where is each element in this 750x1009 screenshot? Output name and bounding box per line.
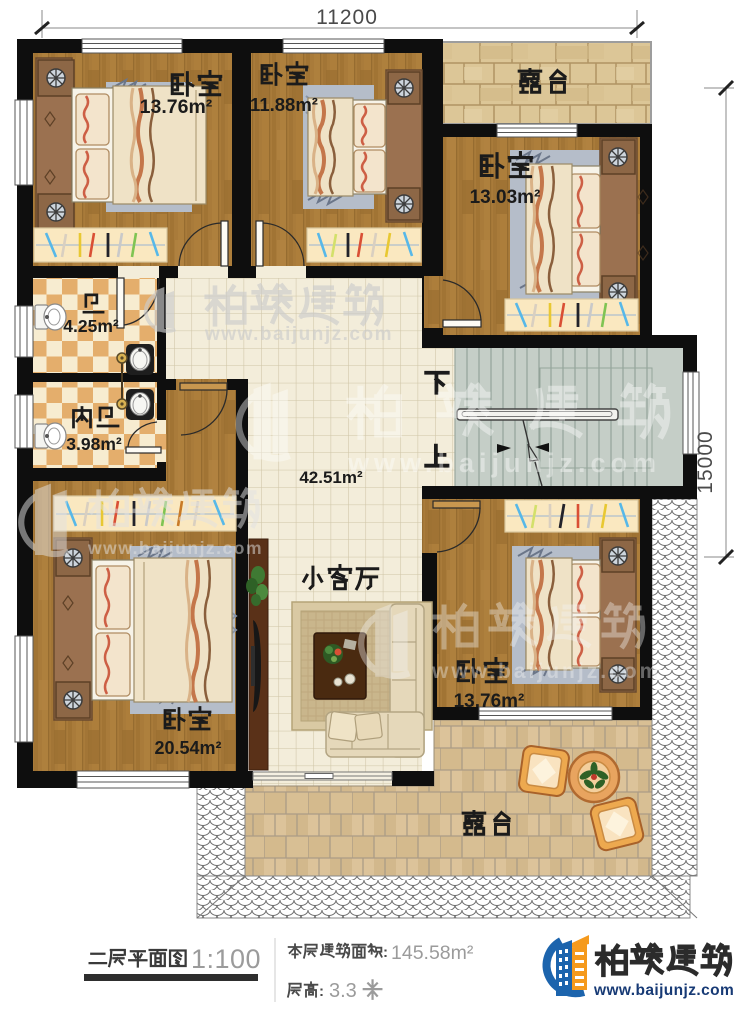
svg-text:www.baijunjz.com: www.baijunjz.com [593, 982, 734, 999]
svg-text:www.baijunjz.com: www.baijunjz.com [87, 538, 263, 558]
svg-text:4.25m²: 4.25m² [63, 316, 119, 336]
svg-text:13.76m²: 13.76m² [454, 691, 525, 712]
svg-text:www.baijunjz.com: www.baijunjz.com [204, 324, 393, 345]
svg-text:3.3: 3.3 [329, 980, 357, 1002]
svg-text:13.76m²: 13.76m² [140, 96, 213, 118]
svg-text:www.baijunjz.com: www.baijunjz.com [431, 660, 661, 683]
svg-text::: : [383, 944, 388, 961]
svg-text:20.54m²: 20.54m² [154, 738, 221, 758]
svg-text::: : [319, 983, 324, 1000]
svg-text:15000: 15000 [694, 430, 717, 493]
svg-text:3.98m²: 3.98m² [66, 434, 122, 454]
svg-text:www.baijunjz.com: www.baijunjz.com [347, 448, 661, 478]
svg-text:145.58m²: 145.58m² [391, 942, 474, 964]
svg-text:11.88m²: 11.88m² [250, 94, 318, 115]
svg-text:1:100: 1:100 [191, 944, 261, 974]
svg-text:13.03m²: 13.03m² [470, 187, 541, 208]
svg-text:11200: 11200 [316, 6, 378, 29]
